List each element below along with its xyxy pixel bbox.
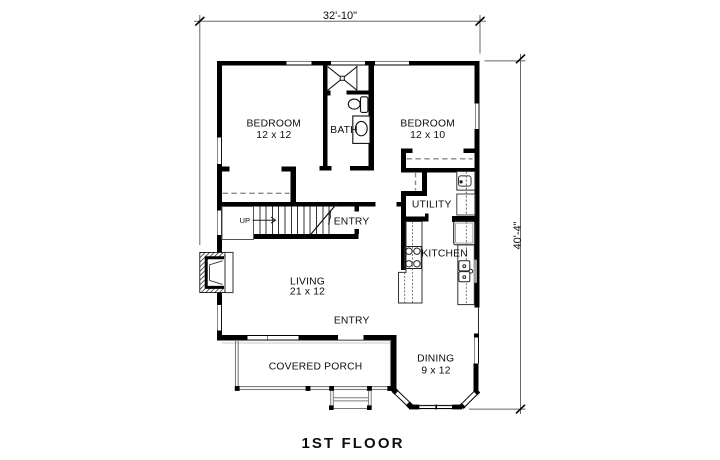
svg-text:COVERED PORCH: COVERED PORCH xyxy=(269,362,363,373)
svg-text:40'-4": 40'-4" xyxy=(512,221,524,249)
svg-text:UTILITY: UTILITY xyxy=(412,200,452,211)
svg-text:UP: UP xyxy=(240,216,251,225)
svg-text:BEDROOM: BEDROOM xyxy=(246,119,301,130)
svg-text:21 x 12: 21 x 12 xyxy=(290,286,325,297)
svg-text:KITCHEN: KITCHEN xyxy=(421,248,468,259)
svg-text:ENTRY: ENTRY xyxy=(334,216,370,227)
svg-text:DINING: DINING xyxy=(417,353,454,364)
svg-text:12 x 10: 12 x 10 xyxy=(410,130,445,141)
svg-text:BATH: BATH xyxy=(330,125,358,136)
svg-text:32'-10": 32'-10" xyxy=(323,10,357,22)
svg-text:BEDROOM: BEDROOM xyxy=(400,119,455,130)
svg-text:1ST FLOOR: 1ST FLOOR xyxy=(301,435,404,452)
svg-text:9 x 12: 9 x 12 xyxy=(421,366,450,377)
svg-text:12 x 12: 12 x 12 xyxy=(256,130,291,141)
svg-text:ENTRY: ENTRY xyxy=(334,316,370,327)
